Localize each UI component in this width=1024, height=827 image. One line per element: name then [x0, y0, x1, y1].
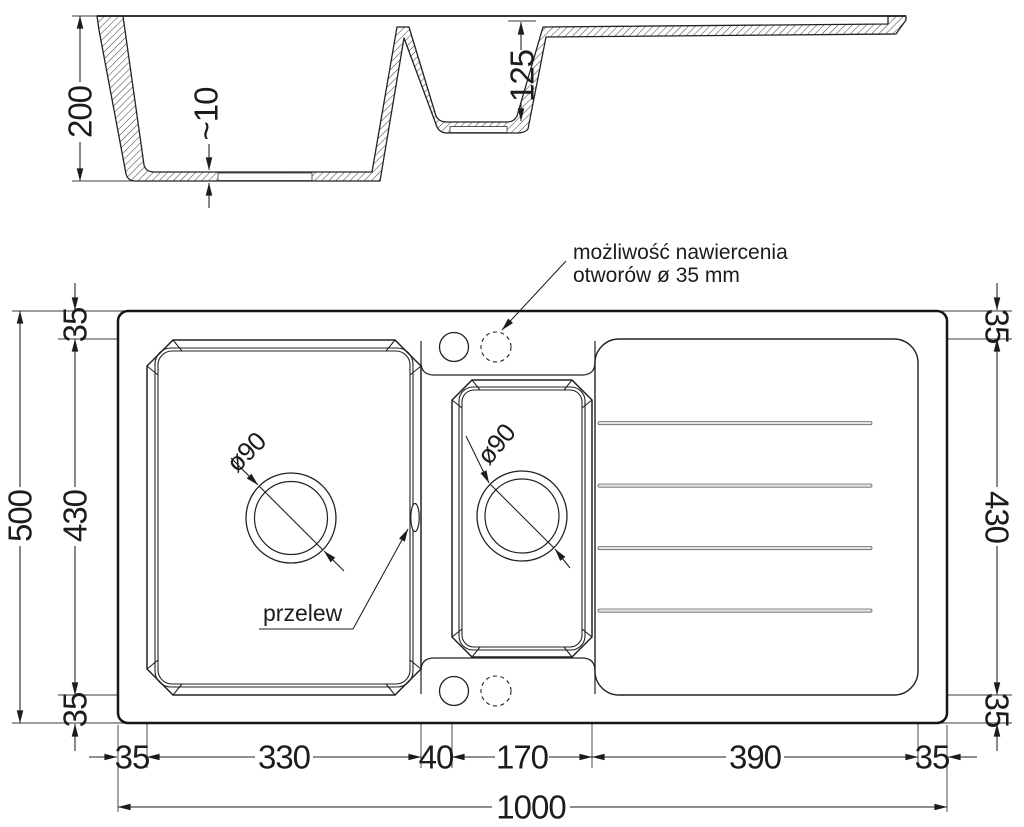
section-view: 200 ~10 125: [62, 16, 907, 208]
dim-bottom-main-bowl: 330: [258, 739, 311, 776]
dim-bottom-drainer: 390: [729, 739, 782, 776]
dims-right: 430 35 35: [979, 283, 1016, 751]
dim-main-depth-label: 200: [62, 85, 99, 138]
dim-left-inner: 430: [57, 489, 94, 542]
overflow-label: przelew: [263, 600, 343, 626]
drawing-canvas: 200 ~10 125: [0, 0, 1024, 827]
faucet-hole-top: [440, 333, 469, 362]
dim-right-top-rim: 35: [979, 309, 1016, 344]
dim-bottom-left-rim: 35: [115, 739, 150, 776]
dim-bottom-total: 1000: [496, 789, 566, 826]
dim-right-bottom-rim: 35: [979, 693, 1016, 728]
dim-bottom-right-rim: 35: [915, 739, 950, 776]
dim-small-depth-label: 125: [504, 50, 541, 102]
dims-left: 500 430 35 35: [2, 283, 94, 751]
dim-bottom-small-bowl: 170: [496, 739, 549, 776]
sink-technical-drawing: 200 ~10 125: [0, 0, 1024, 827]
dim-bottom-thickness-label: ~10: [188, 87, 225, 141]
drill-annotation-line2: otworów ø 35 mm: [573, 264, 740, 287]
plan-view: ø90 ø90 przelew możliwość nawiercenia ot…: [2, 241, 1016, 826]
main-bowl-drain-recess: [218, 173, 312, 181]
overflow-slot: [411, 504, 419, 532]
sink-outline: [118, 311, 947, 723]
dim-bottom-divider: 40: [419, 739, 454, 776]
dims-bottom: 35 330 40 170 390 35 1000: [89, 739, 977, 826]
faucet-hole-bottom: [440, 677, 469, 706]
drill-annotation-line1: możliwość nawiercenia: [573, 241, 788, 264]
dim-main-depth: 200: [62, 16, 99, 181]
small-bowl-drain-recess: [450, 127, 507, 133]
dim-left-top-rim: 35: [57, 308, 94, 343]
dim-left-bottom-rim: 35: [57, 693, 94, 728]
dim-right-inner: 430: [979, 491, 1016, 544]
dim-left-total: 500: [2, 489, 39, 542]
dim-bottom-thickness: ~10: [188, 87, 225, 208]
